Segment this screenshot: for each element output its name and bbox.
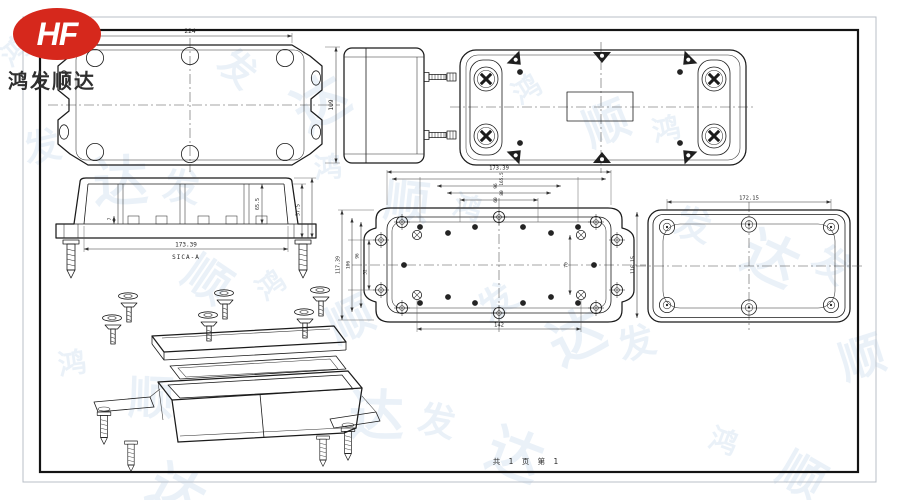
dim-bottom: 142: [494, 323, 504, 329]
washer: [119, 293, 138, 299]
cover-screw: [424, 73, 446, 82]
section-outline: [56, 178, 316, 238]
page-info: 共 1 页 第 1: [493, 456, 562, 466]
dim-width: 173.39: [175, 242, 197, 249]
dim-step: 7: [107, 217, 112, 220]
dim-width: 224: [184, 28, 195, 35]
anchor-screw: [295, 240, 311, 278]
dim-center: 70: [564, 262, 570, 268]
dim-wall-height: 57.5: [296, 204, 302, 216]
section-label: SICA-A: [172, 254, 200, 261]
dim-top-2: 165.5: [499, 172, 505, 186]
cover-screw: [424, 131, 446, 140]
cover-screw: [121, 303, 137, 322]
mount-foot: [94, 397, 154, 412]
dim-top-4: 80: [499, 190, 505, 196]
logo-monogram: HF: [37, 16, 80, 52]
dim-height: 109: [328, 99, 335, 110]
dim-top-1: 173.39: [489, 166, 509, 172]
dim-left-3: 96: [355, 253, 361, 259]
company-name: 鸿发顺达: [8, 69, 96, 93]
dim-left-2: 106: [346, 261, 352, 270]
dim-right: 116.15: [631, 256, 637, 274]
inner-border: [40, 30, 858, 472]
dim-width: 172.15: [739, 196, 759, 202]
exploded-view: [94, 287, 380, 472]
drawing-sheet: 鸿发顺达鸿发顺达鸿发顺达鸿发顺达鸿发顺达鸿发顺达鸿发顺达鸿发: [0, 0, 900, 500]
corner-gusset: [593, 52, 611, 63]
outer-border: [23, 17, 876, 482]
lid-inner-view: 172.15: [636, 196, 862, 331]
brand-logo: HF 鸿发顺达: [8, 8, 101, 93]
dim-left-1: 117.39: [336, 256, 342, 274]
screw-boss: [474, 67, 498, 91]
pilot-hole: [517, 69, 523, 75]
section-view: 65.5 57.5 7 173.39 SICA-A: [56, 178, 316, 278]
anchor-screw: [97, 412, 111, 444]
mount-foot: [330, 412, 380, 428]
base-bottom-view: [447, 42, 756, 173]
standoff-hole: [412, 230, 421, 239]
screw-post: [394, 214, 410, 230]
dim-top-5: 60: [493, 197, 499, 203]
side-view: [344, 48, 446, 163]
screw-boss: [659, 219, 674, 234]
label-recess: [567, 92, 633, 121]
dim-left-4: 52: [363, 269, 369, 275]
engineering-drawing: 224 109: [0, 0, 900, 500]
dim-top-3: 96: [493, 183, 499, 189]
base-inner-view: 173.39 165.5 96 80 60 117.39 106 96 52 1…: [336, 166, 647, 333]
dim-inner-height: 65.5: [255, 198, 261, 210]
drawing-frame: [23, 17, 876, 482]
anchor-screw: [63, 240, 79, 278]
